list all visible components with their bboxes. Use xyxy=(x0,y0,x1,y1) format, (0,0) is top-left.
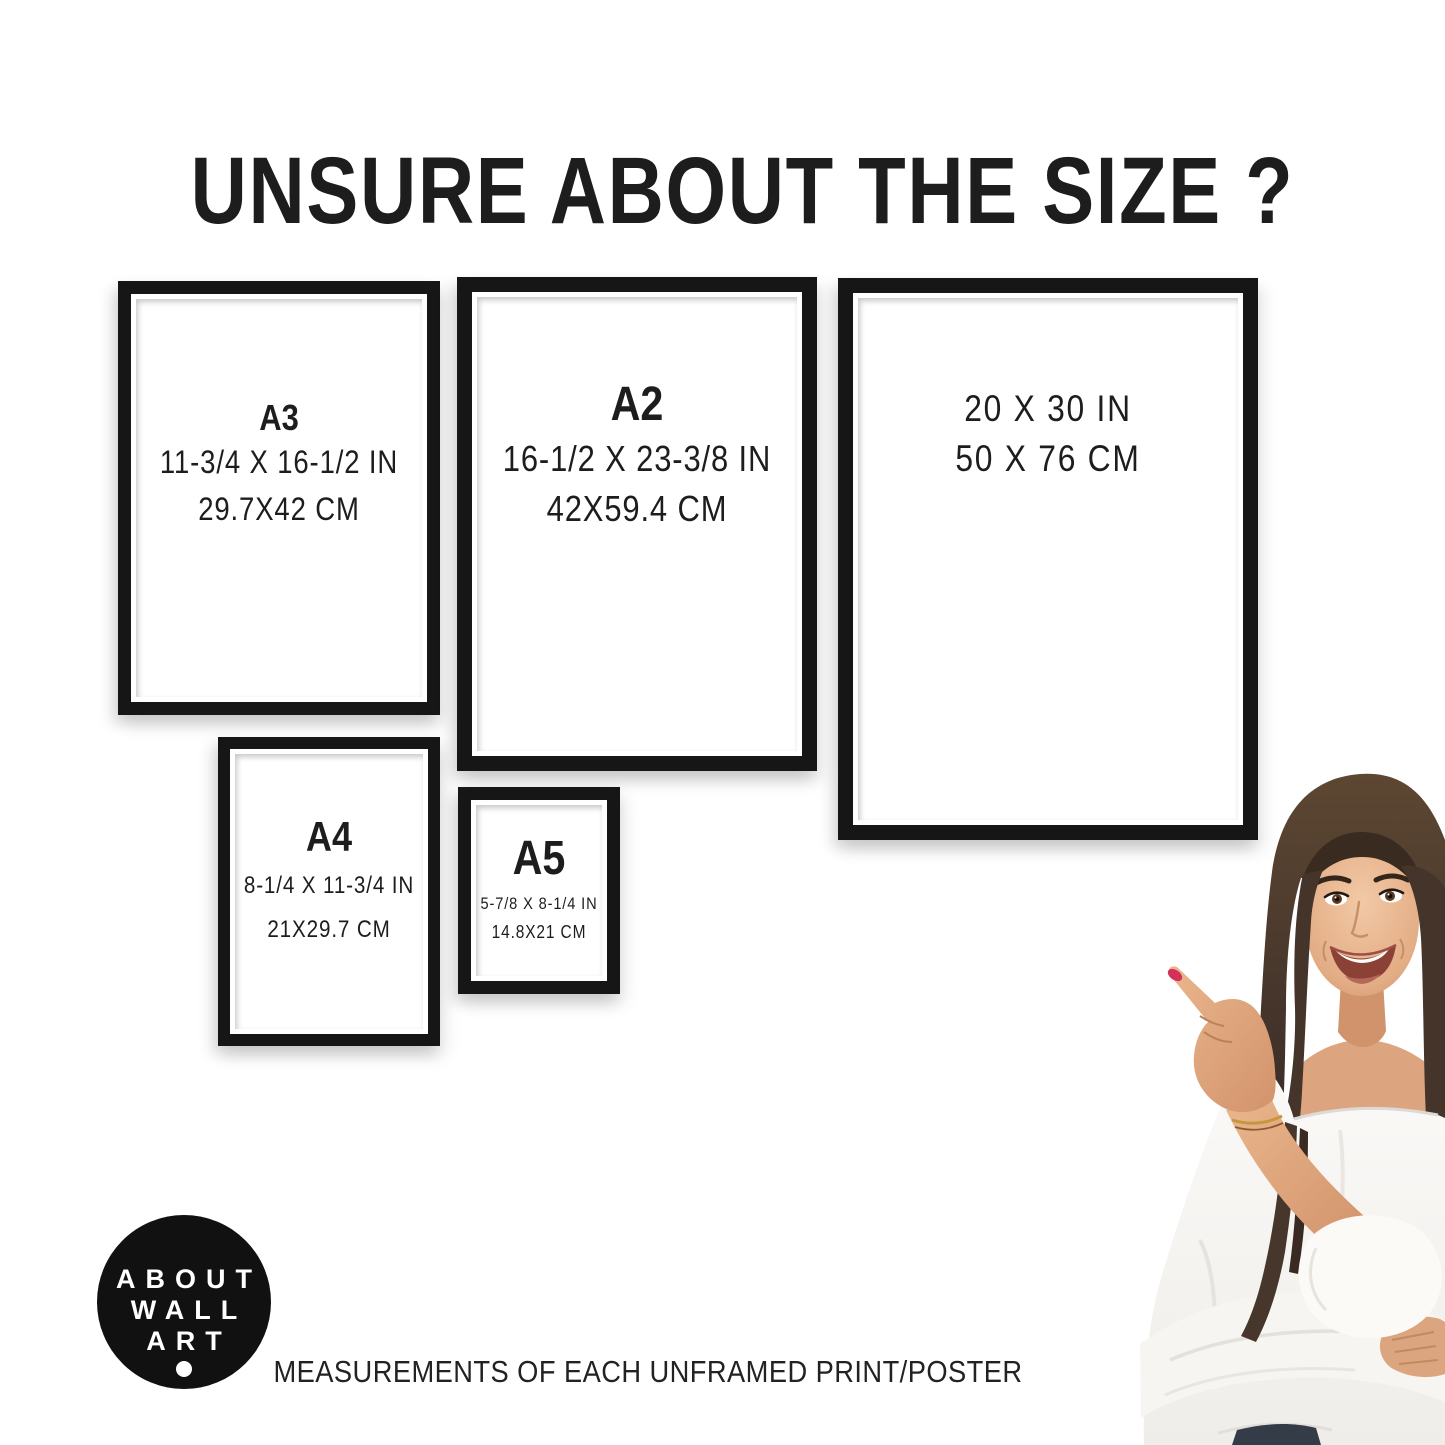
frame-a2-mat: A2 16-1/2 X 23-3/8 IN 42X59.4 CM xyxy=(472,292,802,756)
model-photo xyxy=(1140,770,1445,1445)
frame-a4-size-label: A4 xyxy=(244,812,414,862)
frame-20x30: 20 X 30 IN 50 X 76 CM xyxy=(838,278,1258,840)
frame-a3-mat: A3 11-3/4 X 16-1/2 IN 29.7X42 CM xyxy=(131,294,427,702)
size-guide-poster: UNSURE ABOUT THE SIZE ? A3 11-3/4 X 16-1… xyxy=(0,0,1445,1445)
frame-a5: A5 5-7/8 X 8-1/4 IN 14.8X21 CM xyxy=(458,787,620,994)
frame-a3-inches: 11-3/4 X 16-1/2 IN xyxy=(152,439,407,485)
frame-a3-size-label: A3 xyxy=(152,396,407,439)
frame-a3: A3 11-3/4 X 16-1/2 IN 29.7X42 CM xyxy=(118,281,440,715)
frame-a2: A2 16-1/2 X 23-3/8 IN 42X59.4 CM xyxy=(457,277,817,771)
brand-logo-line-1: ABOUT xyxy=(106,1264,262,1295)
frame-20x30-text: 20 X 30 IN 50 X 76 CM xyxy=(880,384,1215,484)
footer-note: MEASUREMENTS OF EACH UNFRAMED PRINT/POST… xyxy=(78,1352,1218,1392)
frame-a2-inches: 16-1/2 X 23-3/8 IN xyxy=(495,434,779,484)
frame-a3-cm: 29.7X42 CM xyxy=(152,486,407,532)
page-title: UNSURE ABOUT THE SIZE ? xyxy=(150,144,1335,239)
frame-a5-cm: 14.8X21 CM xyxy=(481,922,598,944)
frame-a4-inches: 8-1/4 X 11-3/4 IN xyxy=(244,870,414,901)
frame-a4-cm: 21X29.7 CM xyxy=(244,914,414,945)
frame-a4: A4 8-1/4 X 11-3/4 IN 21X29.7 CM xyxy=(218,737,440,1046)
frame-a5-text: A5 5-7/8 X 8-1/4 IN 14.8X21 CM xyxy=(481,830,598,944)
frame-a4-mat: A4 8-1/4 X 11-3/4 IN 21X29.7 CM xyxy=(230,749,428,1034)
sleeve-puff xyxy=(1299,1215,1442,1338)
frame-a3-text: A3 11-3/4 X 16-1/2 IN 29.7X42 CM xyxy=(152,396,407,532)
frame-20x30-cm: 50 X 76 CM xyxy=(880,434,1215,484)
brand-logo-line-2: WALL xyxy=(121,1295,247,1326)
frame-a2-cm: 42X59.4 CM xyxy=(495,484,779,534)
frame-a5-size-label: A5 xyxy=(481,830,598,888)
frame-a4-text: A4 8-1/4 X 11-3/4 IN 21X29.7 CM xyxy=(244,812,414,945)
frame-20x30-mat: 20 X 30 IN 50 X 76 CM xyxy=(853,293,1243,825)
frame-a2-size-label: A2 xyxy=(495,376,779,434)
pointing-hand xyxy=(1169,966,1276,1112)
frame-a5-inches: 5-7/8 X 8-1/4 IN xyxy=(481,894,598,914)
model-neck-chest xyxy=(1290,977,1439,1118)
frame-a5-mat: A5 5-7/8 X 8-1/4 IN 14.8X21 CM xyxy=(471,800,607,981)
frame-20x30-inches: 20 X 30 IN xyxy=(880,384,1215,434)
frame-a2-text: A2 16-1/2 X 23-3/8 IN 42X59.4 CM xyxy=(495,376,779,534)
